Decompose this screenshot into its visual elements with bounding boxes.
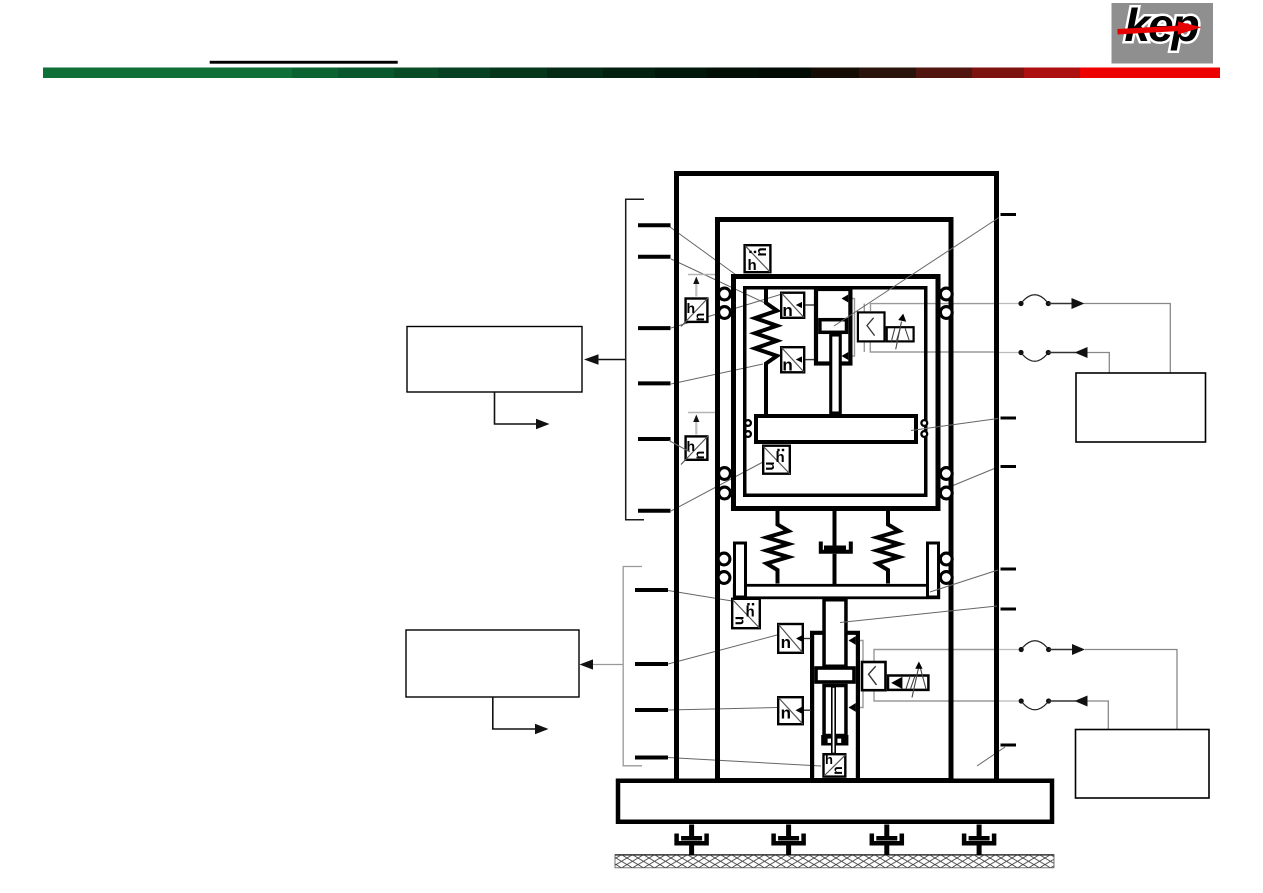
svg-text:h: h [746,604,755,621]
svg-text:u: u [782,358,792,377]
svg-text:u: u [694,313,710,322]
svg-text:u: u [694,451,710,460]
svg-text:u: u [754,247,771,256]
svg-text:u: u [781,706,791,725]
svg-text:h: h [748,257,757,274]
svg-text:h: h [776,449,785,466]
svg-text:h: h [825,752,833,767]
svg-text:u: u [782,303,792,322]
svg-text:u: u [781,635,791,654]
svg-text:u: u [832,766,848,775]
